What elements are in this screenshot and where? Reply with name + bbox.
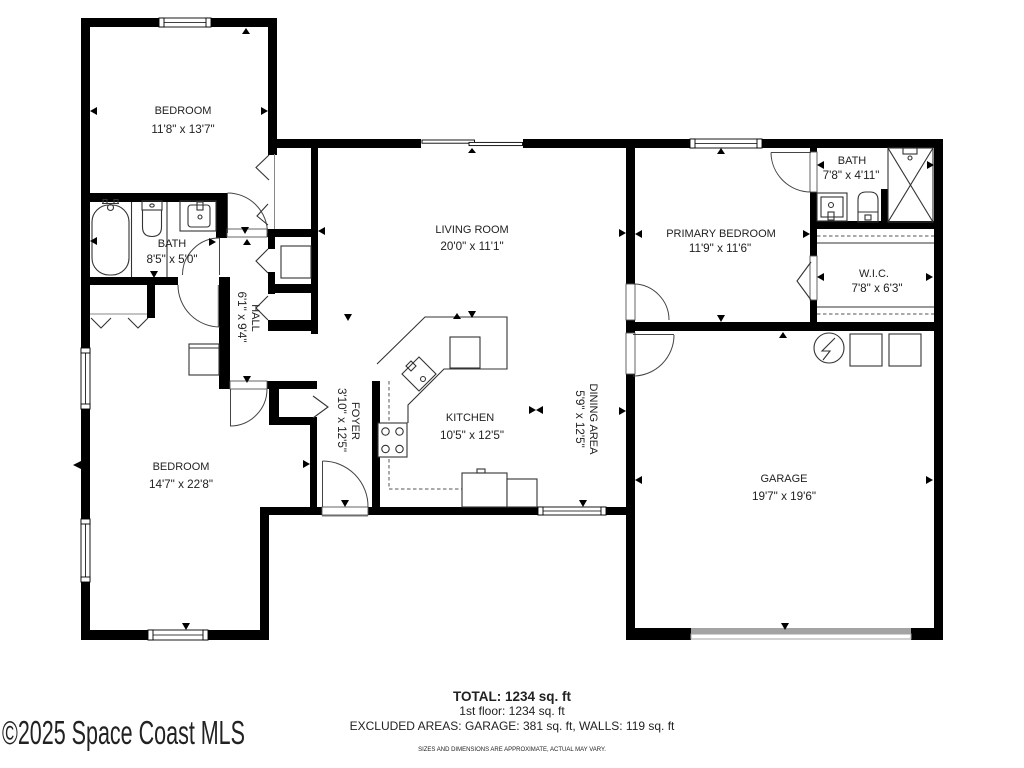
svg-text:8'5" x 5'0": 8'5" x 5'0" bbox=[146, 253, 197, 266]
svg-text:11'9" x 11'6": 11'9" x 11'6" bbox=[689, 242, 751, 255]
svg-text:20'0" x 11'1": 20'0" x 11'1" bbox=[440, 240, 503, 253]
svg-text:DINING AREA: DINING AREA bbox=[587, 384, 599, 456]
svg-text:BATH: BATH bbox=[838, 155, 867, 167]
svg-text:GARAGE: GARAGE bbox=[760, 473, 807, 485]
svg-text:3'10" x 12'5": 3'10" x 12'5" bbox=[335, 388, 348, 452]
svg-text:SIZES AND DIMENSIONS ARE APPRO: SIZES AND DIMENSIONS ARE APPROXIMATE, AC… bbox=[418, 747, 606, 753]
svg-text:PRIMARY BEDROOM: PRIMARY BEDROOM bbox=[666, 228, 776, 240]
svg-text:19'7" x 19'6": 19'7" x 19'6" bbox=[752, 490, 816, 503]
svg-text:1st floor: 1234 sq. ft: 1st floor: 1234 sq. ft bbox=[459, 704, 565, 718]
svg-text:10'5" x 12'5": 10'5" x 12'5" bbox=[440, 429, 504, 442]
svg-text:5'9" x 12'5": 5'9" x 12'5" bbox=[573, 390, 586, 448]
svg-text:BATH: BATH bbox=[158, 238, 187, 250]
svg-text:W.I.C.: W.I.C. bbox=[859, 268, 889, 280]
svg-text:KITCHEN: KITCHEN bbox=[446, 412, 494, 424]
svg-text:EXCLUDED AREAS: GARAGE: 381 sq: EXCLUDED AREAS: GARAGE: 381 sq. ft, WALL… bbox=[350, 719, 675, 733]
svg-text:HALL: HALL bbox=[249, 304, 261, 332]
svg-text:FOYER: FOYER bbox=[349, 402, 361, 440]
svg-text:11'8" x 13'7": 11'8" x 13'7" bbox=[151, 123, 214, 136]
svg-text:©2025 Space Coast MLS: ©2025 Space Coast MLS bbox=[2, 714, 245, 751]
svg-text:LIVING ROOM: LIVING ROOM bbox=[435, 224, 508, 236]
svg-text:BEDROOM: BEDROOM bbox=[153, 461, 210, 473]
svg-text:7'8" x 4'11": 7'8" x 4'11" bbox=[823, 169, 880, 182]
svg-text:6'1" x 9'4": 6'1" x 9'4" bbox=[235, 291, 248, 342]
svg-text:7'8" x 6'3": 7'8" x 6'3" bbox=[851, 282, 902, 295]
svg-text:BEDROOM: BEDROOM bbox=[155, 105, 212, 117]
svg-text:TOTAL: 1234 sq. ft: TOTAL: 1234 sq. ft bbox=[453, 689, 572, 704]
svg-text:14'7" x 22'8": 14'7" x 22'8" bbox=[149, 478, 213, 491]
